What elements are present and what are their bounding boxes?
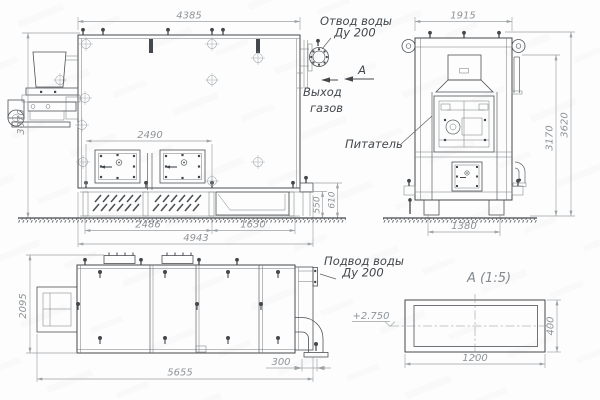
dim-400: 400: [546, 316, 557, 335]
dim-3070: 3070: [16, 109, 27, 134]
dim-550: 550: [313, 196, 323, 213]
dim-2095: 2095: [18, 293, 29, 318]
dim-4385: 4385: [176, 11, 201, 22]
roof-slot: [149, 39, 153, 53]
engineering-drawing: А Отвод воды Ду 200 Выход газов 4385 307…: [0, 0, 600, 400]
section-title: А (1:5): [466, 271, 511, 286]
dim-3620: 3620: [560, 112, 571, 137]
feeder-label: Питатель: [345, 137, 403, 151]
dim-1200: 1200: [462, 353, 487, 364]
gas-outlet-label-1: Выход: [303, 85, 342, 99]
roof-slot: [256, 39, 260, 53]
dim-1380: 1380: [451, 221, 476, 232]
dim-2490: 2490: [137, 130, 162, 141]
dim-610: 610: [328, 191, 338, 208]
ground-line: [18, 218, 346, 223]
dim-1915: 1915: [450, 11, 475, 22]
ground-line: [383, 218, 537, 223]
elevation-value: +2.750: [352, 311, 389, 322]
water-outlet-dn-label: Ду 200: [333, 26, 375, 40]
dim-300: 300: [271, 357, 290, 368]
section-marker-label: А: [357, 63, 366, 77]
gas-outlet-label-2: газов: [310, 101, 343, 115]
dim-3170: 3170: [545, 125, 556, 150]
dim-5655: 5655: [167, 368, 192, 379]
water-supply-dn-label: Ду 200: [341, 266, 383, 280]
dim-4943: 4943: [183, 233, 208, 244]
